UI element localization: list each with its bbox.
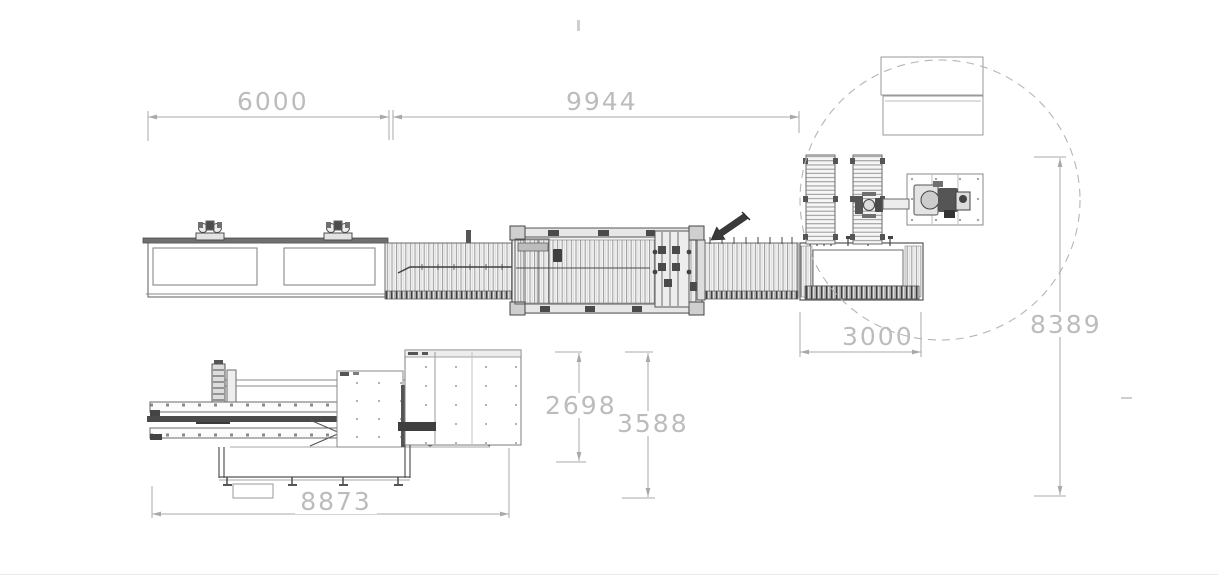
clamp-fixture-2 [324, 221, 352, 240]
dim-label-cell-height: 8389 [1028, 312, 1102, 337]
clamp-fixture-1 [196, 221, 224, 240]
bottom-hairline [0, 574, 1218, 575]
dimension-lines [148, 110, 1066, 518]
stray-tick-right [1121, 397, 1132, 399]
dim-label-stacker-length: 8873 [295, 489, 377, 514]
stacker-machine-side-view [147, 350, 521, 498]
cad-layout-drawing: 6000 9944 3000 8389 2698 3588 8873 [0, 0, 1218, 577]
pallet-stack [881, 57, 983, 135]
dim-label-stacker-outer-height: 3588 [615, 411, 689, 436]
dim-label-outfeed-width: 3000 [842, 324, 904, 349]
dim-label-infeed-length: 6000 [237, 89, 297, 114]
dim-label-stacker-inner-height: 2698 [543, 393, 615, 418]
infeed-table [143, 238, 388, 297]
stacker-foot-plate [233, 484, 273, 498]
outfeed-conveyor [800, 236, 923, 300]
flow-direction-arrow-icon [711, 212, 750, 240]
roller-conveyor-2 [697, 237, 798, 300]
dim-label-main-line-length: 9944 [566, 89, 630, 114]
vertical-conveyor-1 [803, 155, 838, 244]
main-machine [510, 226, 704, 315]
stray-tick-top [577, 20, 580, 31]
